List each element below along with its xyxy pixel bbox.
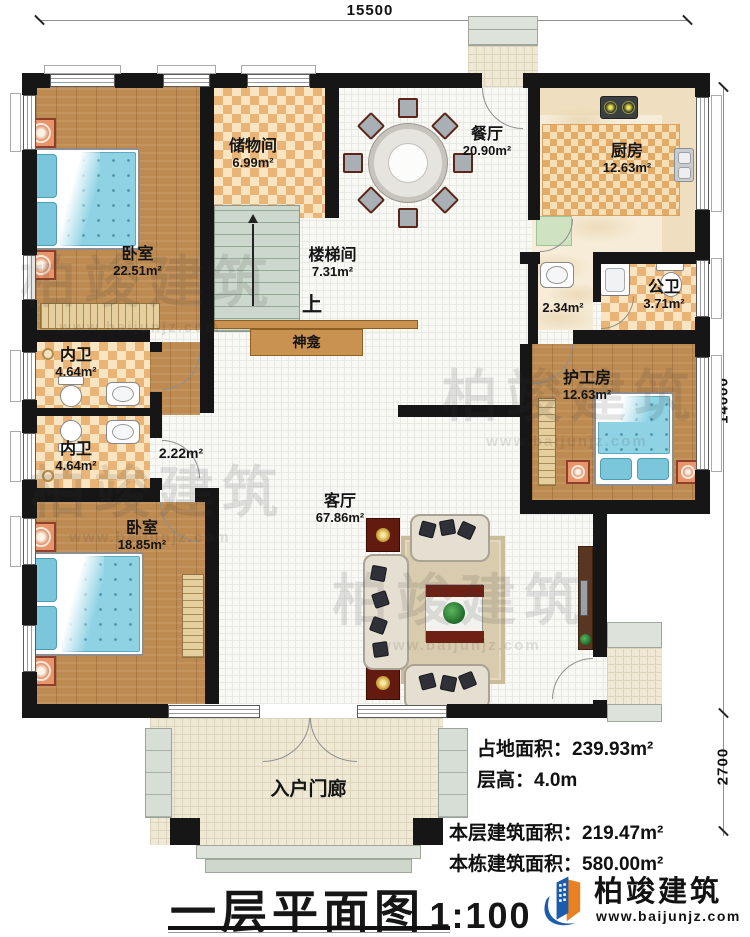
lamp-icon	[376, 528, 390, 542]
wardrobe	[538, 398, 556, 486]
room-area: 67.86m²	[278, 511, 402, 526]
window-sill	[157, 65, 216, 74]
wall-segment	[593, 264, 601, 302]
room-label-storage: 储物间 6.99m²	[194, 138, 312, 171]
dining-chair	[398, 208, 418, 228]
wall-segment	[520, 344, 532, 500]
entry-threshold	[263, 704, 357, 718]
dining-chair	[343, 153, 363, 173]
sofa-pillow	[370, 565, 387, 582]
room-name: 餐厅	[428, 126, 546, 144]
room-label-laundry: 2.34m²	[513, 300, 613, 315]
dining-table-center	[388, 143, 428, 183]
room-label-hallway: 2.22m²	[133, 445, 229, 461]
room-name: 厨房	[568, 143, 686, 161]
room-area: 7.31m²	[270, 265, 395, 280]
room-label-living: 客厅 67.86m²	[278, 493, 402, 526]
window	[23, 255, 36, 300]
room-label-public-bath: 公卫 3.71m²	[606, 279, 722, 312]
room-label-stairwell: 楼梯间 7.31m²	[270, 247, 395, 280]
dimension-label-right-lower: 2700	[715, 732, 732, 802]
lamp-icon	[376, 676, 390, 690]
wall-segment	[520, 500, 710, 514]
window	[23, 95, 36, 150]
stairs-direction-line	[252, 224, 254, 306]
room-label-porch: 入户门廊	[226, 779, 391, 801]
stat-label: 本层建筑面积：	[449, 823, 582, 844]
bed-sheet	[62, 556, 104, 652]
washbasin-icon	[540, 262, 574, 288]
wall-segment	[447, 704, 607, 718]
wall-segment	[593, 500, 607, 657]
window-sill	[241, 65, 316, 74]
room-label-bedroom1: 卧室 22.51m²	[75, 246, 200, 279]
room-name: 卧室	[75, 246, 200, 264]
room-area: 12.63m²	[568, 161, 686, 176]
room-area: 12.63m²	[527, 388, 647, 403]
wall-segment	[22, 150, 37, 255]
stat-value: 4.0m	[534, 770, 577, 791]
porch-column	[413, 818, 443, 845]
stat-value: 219.47m²	[582, 823, 663, 844]
wall-segment	[573, 330, 710, 344]
building-logo-icon	[538, 874, 592, 928]
brand-name: 柏竣建筑	[594, 878, 722, 907]
coffee-table-band	[426, 631, 484, 643]
stat-land: 占地面积：239.93m²	[477, 734, 653, 765]
window	[23, 518, 36, 565]
window-sill	[10, 93, 21, 152]
basin-bowl	[112, 386, 134, 402]
up-arrow-icon	[248, 214, 258, 223]
title-underline	[168, 926, 450, 930]
wall-segment	[195, 488, 219, 502]
wall-segment	[528, 264, 538, 330]
wall-segment	[22, 488, 160, 502]
wall-segment	[22, 400, 37, 433]
window-sill	[44, 65, 121, 74]
window	[23, 625, 36, 672]
wall-segment	[398, 405, 520, 417]
wall-segment	[205, 502, 219, 704]
stairs-up-label: 上	[302, 288, 322, 317]
basin-bowl	[112, 424, 134, 440]
room-name: 护工房	[527, 370, 647, 388]
window-sill	[711, 95, 722, 212]
room-area: 4.64m²	[18, 365, 134, 380]
title-underline-thin	[168, 932, 450, 933]
wall-segment	[325, 87, 339, 218]
brand-website: www.baijunjz.com	[596, 908, 741, 924]
window-sill	[711, 355, 722, 472]
wall-segment	[36, 408, 150, 416]
room-name: 入户门廊	[226, 779, 391, 801]
room-name: 内卫	[18, 441, 134, 459]
window	[247, 74, 310, 87]
basin-bowl	[546, 266, 568, 284]
sofa-pillow	[439, 519, 456, 536]
wall-segment	[593, 252, 710, 264]
wall-segment	[523, 73, 710, 88]
room-label-kitchen: 厨房 12.63m²	[568, 143, 686, 176]
stat-label: 层高：	[477, 770, 534, 791]
wall-segment	[593, 700, 607, 718]
stat-floor-area: 本层建筑面积：219.47m²	[449, 818, 663, 849]
window	[357, 705, 447, 718]
room-name: 客厅	[278, 493, 402, 511]
plant-icon	[580, 634, 591, 645]
room-name: 储物间	[194, 138, 312, 156]
washbasin-icon	[106, 382, 140, 406]
plant-icon	[443, 602, 465, 624]
room-area: 6.99m²	[194, 156, 312, 171]
side-landing	[607, 648, 662, 704]
pillow	[600, 458, 632, 480]
room-label-bath2: 内卫 4.64m²	[18, 441, 134, 474]
stat-label: 占地面积：	[477, 739, 572, 760]
side-step	[607, 704, 662, 722]
wardrobe	[182, 574, 204, 658]
window	[163, 74, 210, 87]
pillow	[637, 458, 669, 480]
walkway-left	[145, 728, 172, 818]
shrine-shelf	[214, 320, 418, 329]
room-area: 18.85m²	[80, 538, 204, 553]
room-name: 神龛	[250, 334, 363, 350]
burner-icon	[622, 101, 635, 114]
room-area: 4.64m²	[18, 459, 134, 474]
nightstand	[566, 460, 590, 484]
tv-icon	[580, 580, 588, 616]
wall-segment	[22, 565, 37, 625]
brand-block: 柏竣建筑 www.baijunjz.com	[538, 872, 748, 932]
wall-segment	[310, 73, 482, 88]
window	[696, 97, 709, 210]
window-sill	[10, 516, 21, 567]
wall-segment	[115, 73, 163, 88]
window	[168, 705, 260, 718]
coffee-table-band	[426, 585, 484, 597]
wall-segment	[22, 300, 37, 352]
sofa-pillow	[372, 641, 389, 658]
porch-step	[205, 859, 412, 873]
window	[696, 357, 709, 470]
wall-segment	[528, 330, 538, 344]
walkway-right	[438, 728, 468, 818]
stove-icon	[600, 96, 638, 119]
closet	[40, 303, 160, 329]
room-label-dining: 餐厅 20.90m²	[428, 126, 546, 159]
wall-segment	[150, 392, 162, 438]
room-area: 3.71m²	[606, 297, 722, 312]
porch-column	[170, 818, 200, 845]
wall-segment	[210, 73, 247, 88]
side-step	[607, 622, 662, 648]
floor-plan: 15500 14000 2700	[0, 0, 750, 937]
bed-sheet	[60, 152, 100, 246]
dining-chair	[398, 98, 418, 118]
room-area: 20.90m²	[428, 144, 546, 159]
wall-segment	[200, 87, 214, 413]
wall-segment	[22, 330, 150, 342]
wall-segment	[22, 704, 168, 718]
stats-block-lower: 本层建筑面积：219.47m² 本栋建筑面积：580.00m²	[449, 818, 663, 880]
stat-height: 层高：4.0m	[477, 765, 653, 796]
room-label-bedroom2: 卧室 18.85m²	[80, 520, 204, 553]
wall-segment	[520, 252, 540, 264]
wall-segment	[22, 73, 37, 95]
brand-logo-icon	[538, 874, 592, 933]
burner-icon	[604, 101, 617, 114]
toilet-icon	[60, 420, 82, 442]
wall-segment	[150, 342, 162, 352]
room-label-bath1: 内卫 4.64m²	[18, 347, 134, 380]
room-label-caregiver: 护工房 12.63m²	[527, 370, 647, 403]
dimension-label-top: 15500	[320, 2, 420, 19]
room-label-shrine: 神龛	[250, 334, 363, 350]
room-name: 公卫	[606, 279, 722, 297]
dimension-line	[40, 20, 688, 21]
nightstand-knob	[681, 465, 695, 479]
toilet-icon	[60, 385, 82, 407]
stats-block-upper: 占地面积：239.93m² 层高：4.0m	[477, 734, 653, 796]
room-name: 内卫	[18, 347, 134, 365]
room-name: 楼梯间	[270, 247, 395, 265]
wall-segment	[695, 73, 710, 97]
room-name: 卧室	[80, 520, 204, 538]
porch-step	[196, 845, 421, 859]
stat-value: 239.93m²	[572, 739, 653, 760]
window	[50, 74, 115, 87]
back-steps	[468, 16, 538, 46]
room-area: 22.51m²	[75, 264, 200, 279]
sofa-pillow	[440, 675, 458, 693]
nightstand-knob	[571, 465, 585, 479]
